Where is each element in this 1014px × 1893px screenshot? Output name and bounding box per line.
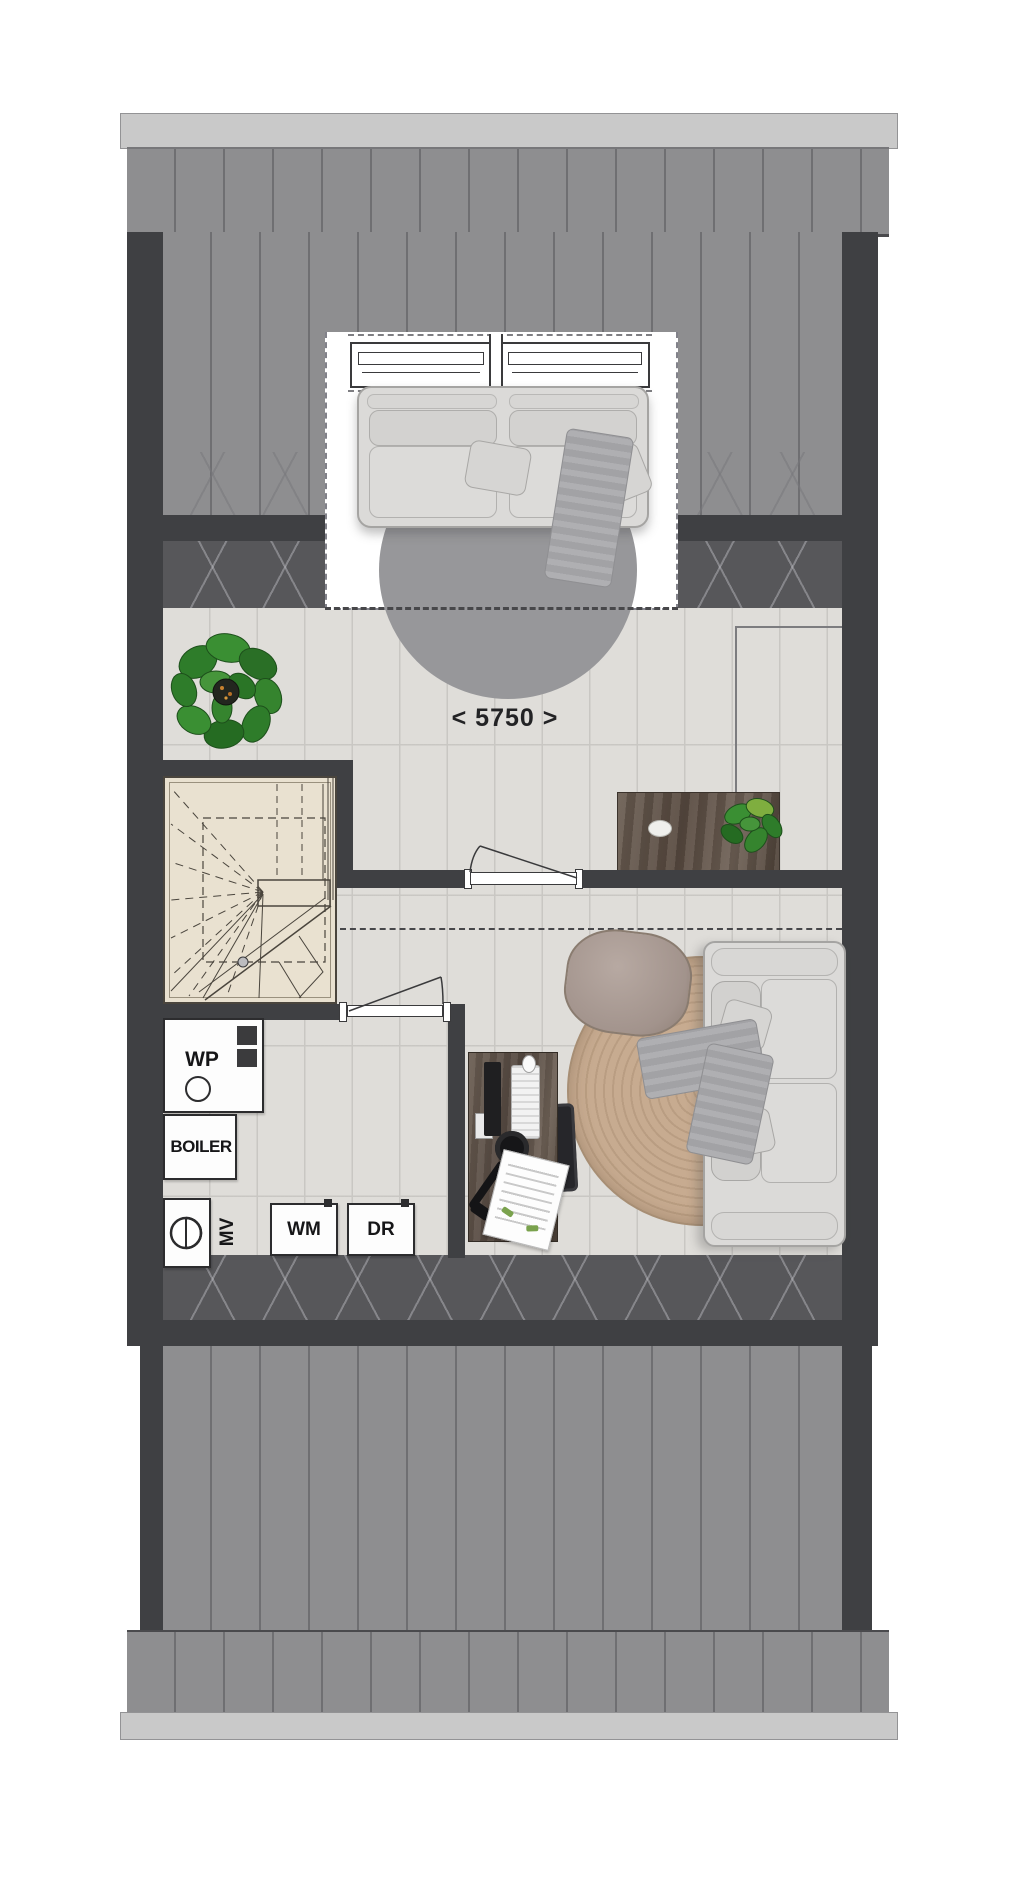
roof-planks-top-band: [127, 147, 889, 237]
door-laundry: [347, 1005, 443, 1017]
door-living: [470, 872, 577, 885]
exterior-wall-bottom: [127, 1320, 878, 1346]
ceiling-edge-outline: [735, 626, 842, 792]
floor-plan-canvas: < 5750 >: [0, 0, 1014, 1893]
exterior-wall-left: [127, 232, 163, 1346]
roof-verge-left: [140, 1346, 163, 1630]
interior-wall: [353, 870, 470, 888]
heat-pump-label: WP: [165, 1048, 239, 1072]
washing-machine-label: WM: [272, 1205, 336, 1254]
dormer-window: [348, 334, 652, 392]
roof-gutter-bottom: [120, 1712, 898, 1740]
headroom-dashed-line-top: [325, 607, 678, 610]
mechanical-ventilation-unit: [163, 1198, 211, 1268]
door-jamb: [339, 1002, 347, 1022]
paper-doodle: [501, 1206, 514, 1218]
interior-wall: [577, 870, 842, 888]
sofa-bench-right: [509, 394, 639, 409]
stairwell-wall-top: [163, 760, 353, 776]
monitor: [484, 1062, 501, 1136]
sofa-armrest: [711, 948, 838, 976]
monstera-plant: [164, 624, 292, 752]
heat-pump-unit: WP: [163, 1018, 264, 1113]
heat-pump-dial-icon: [185, 1076, 211, 1102]
roof-planks-lower: [163, 1346, 842, 1630]
keyboard: [511, 1065, 540, 1139]
window-mullion: [489, 334, 503, 390]
dimension-label: < 5750 >: [415, 704, 595, 733]
exterior-wall-right: [842, 232, 878, 1346]
mouse: [522, 1055, 536, 1073]
headroom-dashed-line-bottom: [340, 928, 842, 930]
stairwell-wall-right: [337, 760, 353, 888]
roof-gutter-top: [120, 113, 898, 149]
heat-pump-vent: [237, 1049, 257, 1067]
boiler-unit: BOILER: [163, 1114, 237, 1180]
winder-staircase: [163, 776, 337, 1004]
door-jamb: [443, 1002, 451, 1022]
plant-on-sideboard: [712, 792, 788, 856]
ventilation-fan-icon: [165, 1200, 209, 1266]
window-pane-left: [350, 342, 492, 388]
sloped-ceiling-band-bottom: [163, 1255, 842, 1320]
daybed-sofa: [357, 386, 649, 528]
paper-doodle: [526, 1225, 538, 1231]
laundry-wall-right: [448, 1004, 465, 1258]
mechanical-ventilation-label: MV: [217, 1210, 237, 1254]
decor-dish: [648, 820, 672, 837]
washing-machine: WM: [270, 1203, 338, 1256]
sofa-armrest: [711, 1212, 838, 1240]
heat-pump-vent: [237, 1026, 257, 1045]
boiler-label: BOILER: [162, 1116, 240, 1178]
roof-verge-right: [842, 1346, 872, 1630]
dryer: DR: [347, 1203, 415, 1256]
sofa-bench-left: [367, 394, 497, 409]
window-pane-right: [500, 342, 650, 388]
dryer-label: DR: [349, 1205, 413, 1254]
roof-planks-bottom-band: [127, 1630, 889, 1716]
